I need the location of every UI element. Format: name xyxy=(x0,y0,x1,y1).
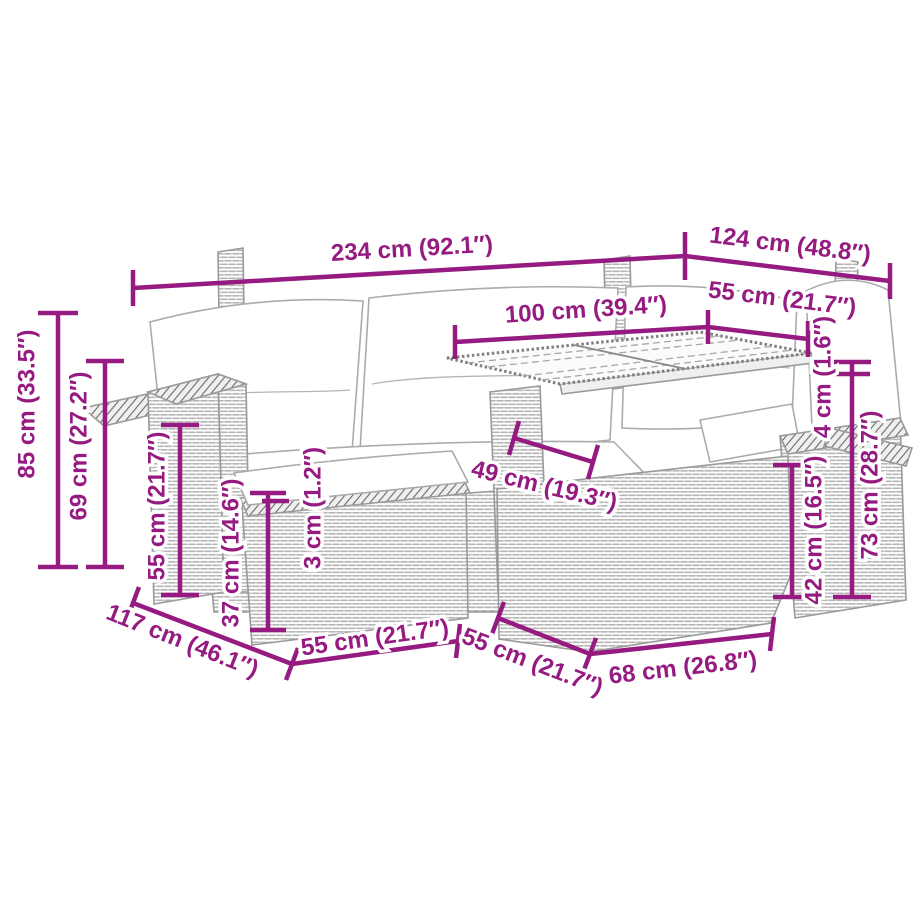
dim-label-top-width: 234 cm (92.1″) xyxy=(330,231,494,267)
dim-label-backrest-height: 69 cm (27.2″) xyxy=(65,372,92,521)
dim-label-armrest-height: 55 cm (21.7″) xyxy=(143,432,170,581)
dim-label-table-clearance: 42 cm (16.5″) xyxy=(800,456,827,605)
dim-label-tabletop-thickness: 4 cm (1.6″) xyxy=(809,316,836,438)
dim-label-overall-height: 85 cm (33.5″) xyxy=(13,330,40,479)
dim-label-cushion-thickness: 3 cm (1.2″) xyxy=(299,447,326,569)
diagram-canvas: 234 cm (92.1″) 124 cm (48.8″) 55 cm (21.… xyxy=(0,0,920,920)
product-dimension-diagram: 234 cm (92.1″) 124 cm (48.8″) 55 cm (21.… xyxy=(0,0,920,920)
dim-label-table-base-length: 68 cm (26.8″) xyxy=(607,646,758,690)
dim-label-table-height: 73 cm (28.7″) xyxy=(856,411,883,560)
dim-backrest-height: 69 cm (27.2″) xyxy=(65,361,124,567)
dim-label-seat-height: 37 cm (14.6″) xyxy=(217,479,244,628)
